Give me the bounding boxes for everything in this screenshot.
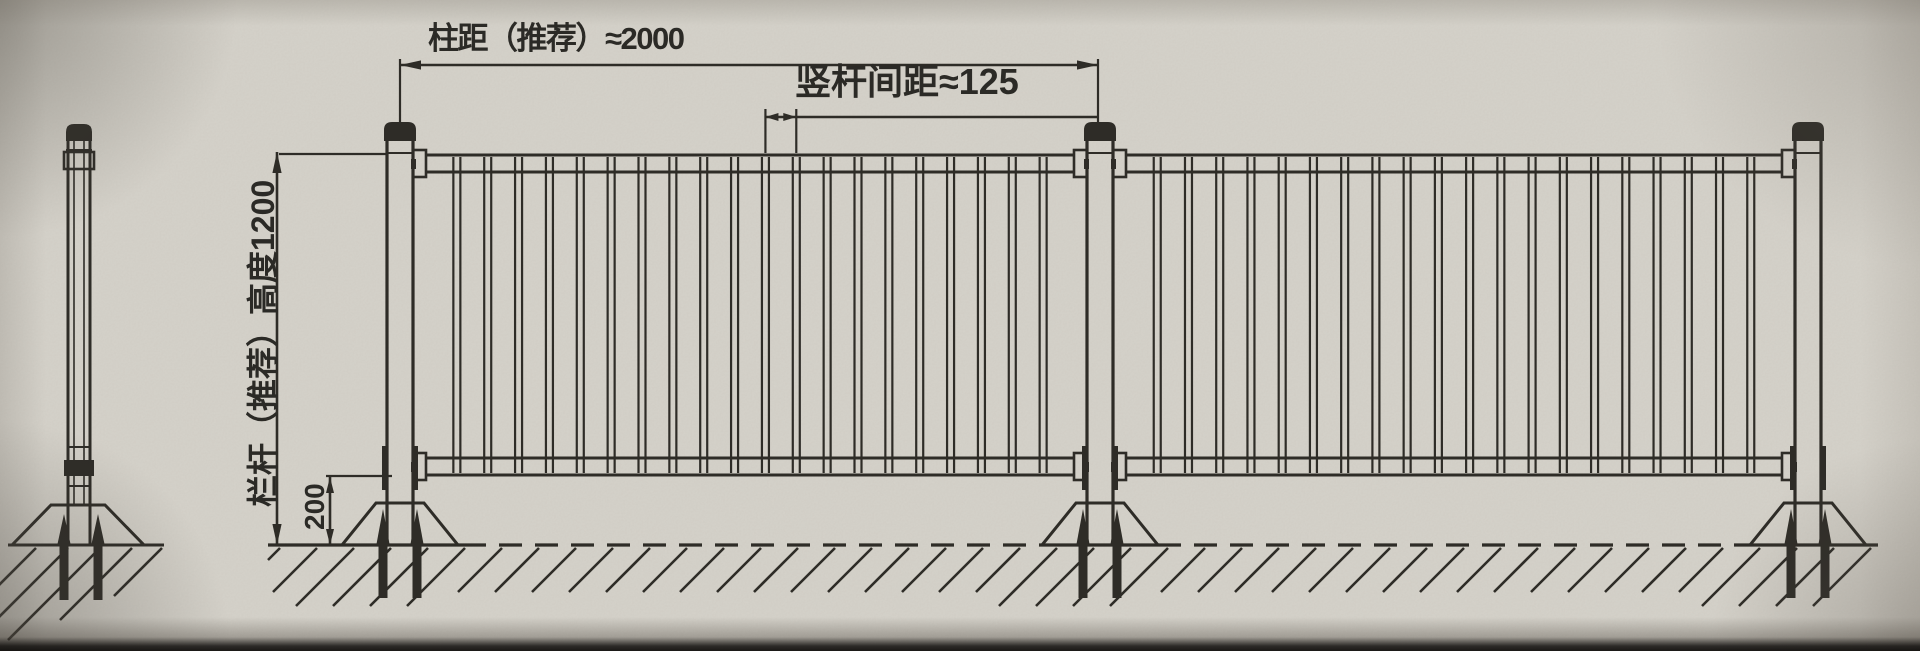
drawing-canvas: 柱距（推荐）≈2000 竖杆间距≈125 栏杆（推荐）高度1200 200 [0, 0, 1920, 651]
dim-label-rail-height: 栏杆（推荐）高度1200 [245, 180, 281, 507]
dim-label-post-spacing: 柱距（推荐）≈2000 [428, 21, 684, 56]
dim-label-base-height: 200 [299, 483, 330, 530]
dim-label-bar-spacing: 竖杆间距≈125 [795, 61, 1019, 102]
guardrail-technical-drawing: 柱距（推荐）≈2000 竖杆间距≈125 栏杆（推荐）高度1200 200 [0, 0, 1920, 651]
